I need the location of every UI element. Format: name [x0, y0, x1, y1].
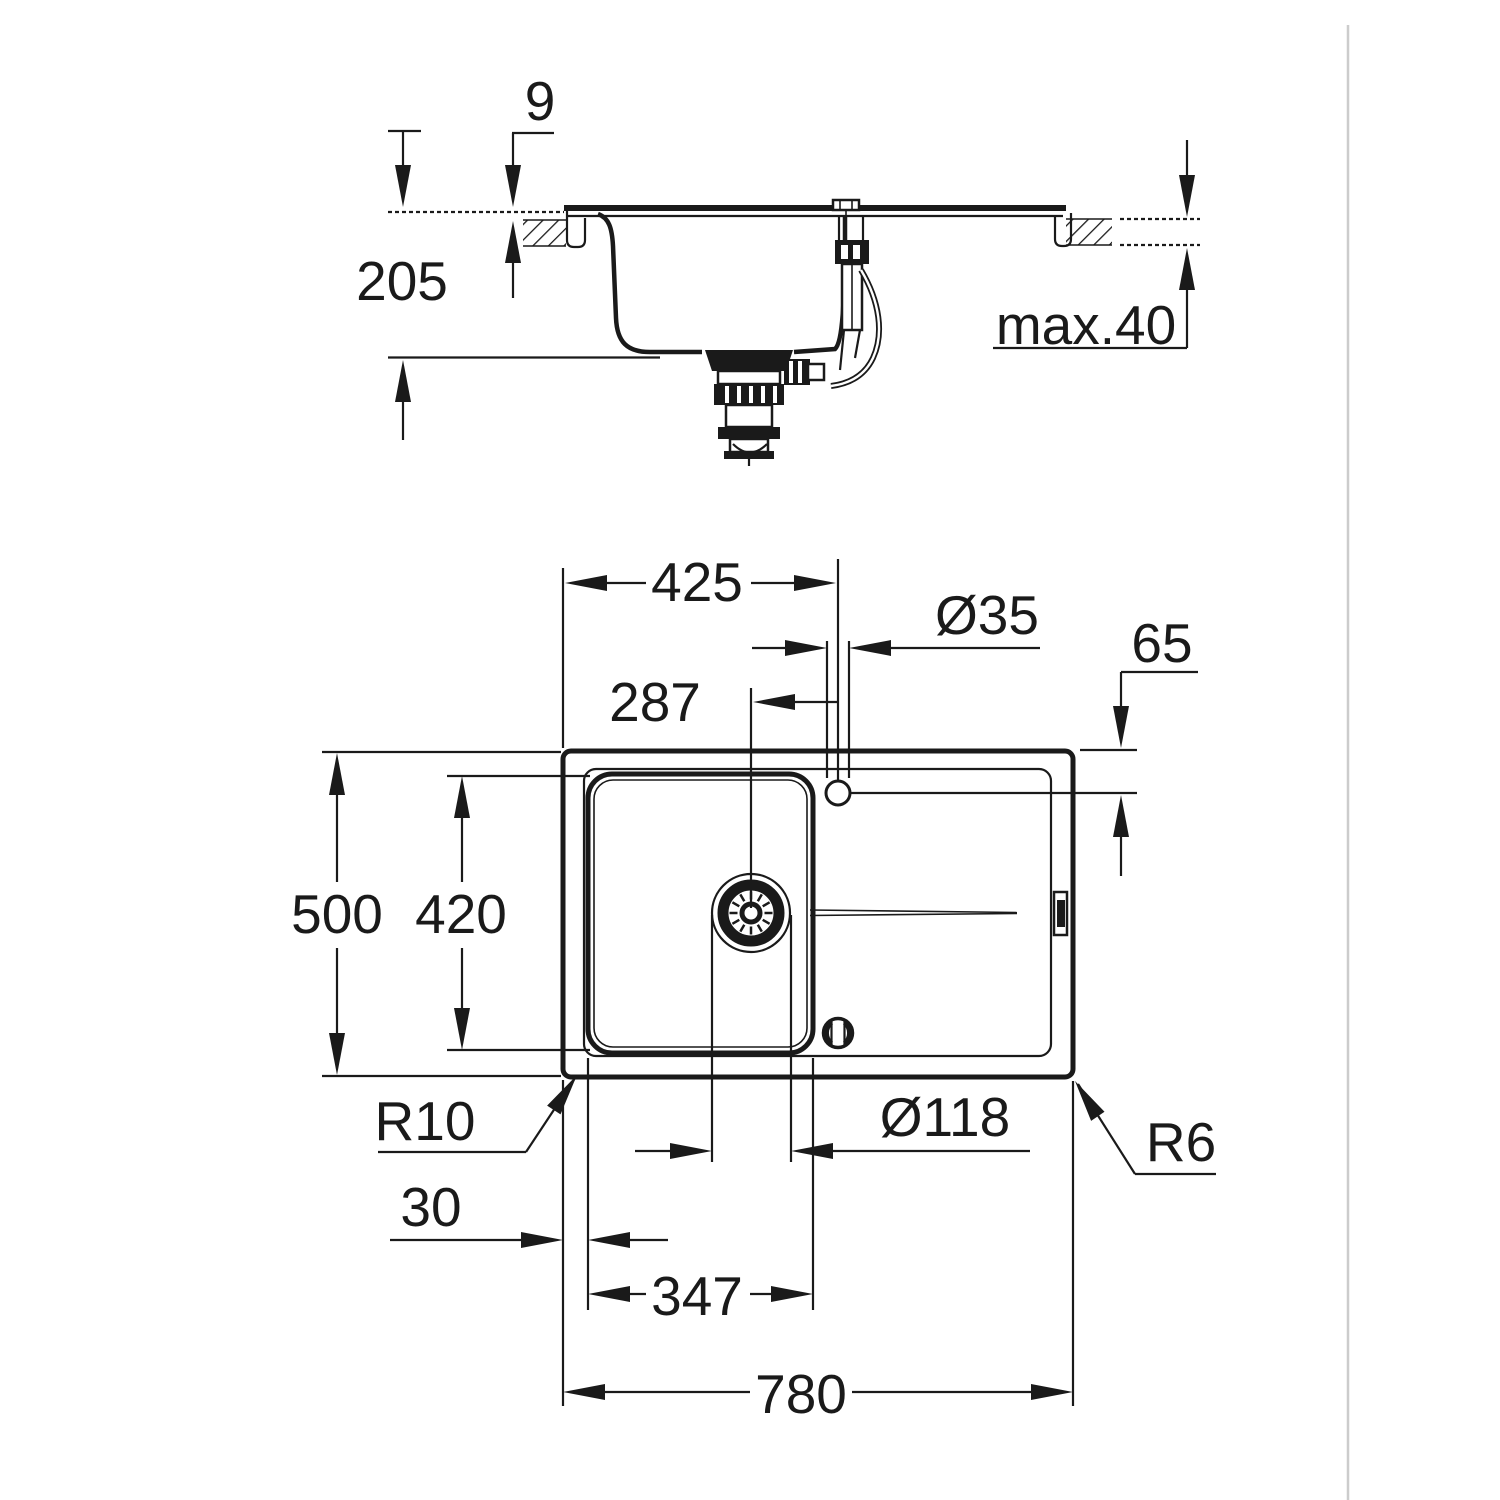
- dim-label-420: 420: [415, 883, 507, 945]
- technical-drawing-page: 9 205 max.40: [0, 0, 1500, 1500]
- dim-label-d118: Ø118: [880, 1086, 1010, 1148]
- section-view: 9 205 max.40: [356, 70, 1200, 466]
- dim-label-30: 30: [400, 1176, 461, 1238]
- drain-waste-assembly: [705, 350, 824, 466]
- dimension-edge-to-bowl: 30: [390, 1176, 668, 1248]
- dim-label-205: 205: [356, 250, 448, 312]
- sink-dimension-drawing: 9 205 max.40: [0, 0, 1500, 1500]
- plan-view: 425 Ø35 65 287: [291, 551, 1216, 1425]
- overflow-slot: [1054, 892, 1067, 935]
- dim-label-780: 780: [755, 1363, 847, 1425]
- dim-label-347: 347: [651, 1265, 743, 1327]
- dim-label-r10: R10: [375, 1090, 476, 1152]
- drain-control-knob: [824, 1019, 853, 1048]
- dimension-rim-height: 9: [505, 70, 555, 298]
- dim-label-r6: R6: [1146, 1111, 1216, 1173]
- worktop-hatch-right: [1066, 219, 1112, 245]
- dimension-worktop-thickness: max.40: [993, 140, 1195, 356]
- dimension-faucet-from-left: 425: [563, 551, 838, 781]
- dim-label-287: 287: [609, 671, 701, 733]
- dimension-bowl-inner-width: 347: [588, 1058, 813, 1327]
- dimension-outer-corner-radius: R6: [1075, 1081, 1216, 1174]
- dim-label-425: 425: [651, 551, 743, 613]
- drainer-groove: [810, 910, 1017, 916]
- worktop-hatch-left: [523, 220, 566, 246]
- dim-label-500: 500: [291, 883, 383, 945]
- dim-label-max40: max.40: [996, 294, 1176, 356]
- dim-label-d35: Ø35: [935, 584, 1039, 646]
- bowl-right-wall: [794, 215, 845, 352]
- dimension-bowl-depth: 205: [356, 131, 448, 440]
- dim-label-9: 9: [525, 70, 556, 132]
- dimension-bowl-corner-radius: R10: [375, 1075, 577, 1152]
- overflow-standpipe: [831, 200, 879, 386]
- faucet-hole: [826, 781, 850, 805]
- dim-label-65: 65: [1131, 612, 1192, 674]
- dimension-faucet-from-top: 65: [851, 612, 1198, 876]
- bowl-left-wall: [598, 214, 702, 352]
